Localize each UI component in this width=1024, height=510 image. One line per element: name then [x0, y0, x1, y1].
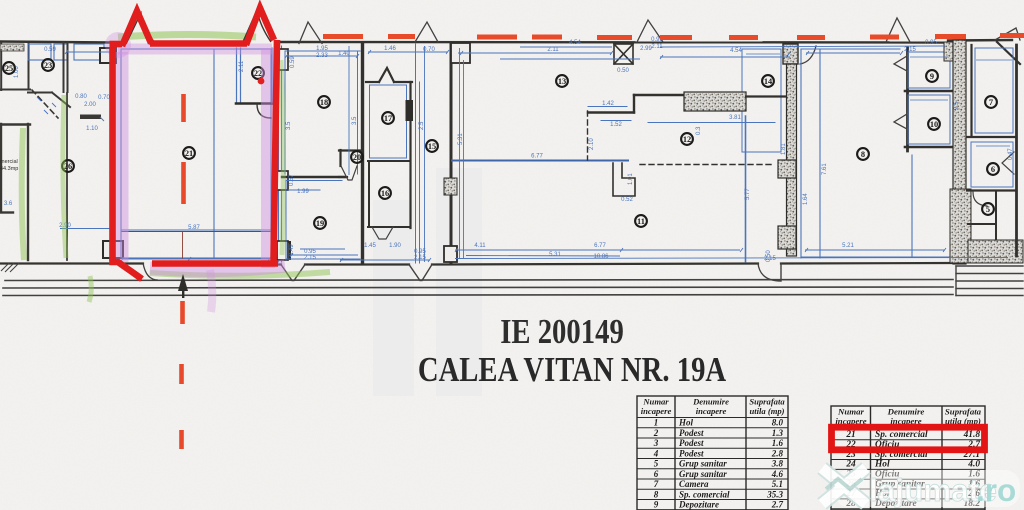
svg-text:Sp. comercial: Sp. comercial [875, 430, 928, 440]
svg-text:6: 6 [654, 469, 659, 479]
svg-text:Hol: Hol [874, 460, 890, 470]
svg-text:Numar: Numar [837, 407, 864, 417]
svg-text:Suprafata: Suprafata [945, 407, 982, 417]
svg-text:8.0: 8.0 [772, 418, 784, 428]
svg-text:1.6: 1.6 [772, 438, 784, 448]
svg-text:Podest: Podest [679, 438, 704, 448]
svg-text:3.8: 3.8 [771, 459, 784, 469]
svg-text:41.8: 41.8 [963, 430, 981, 440]
svg-text:7: 7 [654, 479, 659, 489]
svg-text:4.6: 4.6 [771, 469, 784, 479]
svg-text:.ro: .ro [976, 472, 1016, 508]
svg-text:Sp. comercial: Sp. comercial [679, 489, 730, 499]
svg-text:Hol: Hol [678, 418, 694, 428]
svg-text:4.0: 4.0 [967, 460, 980, 470]
svg-text:Grup sanitar: Grup sanitar [679, 469, 727, 479]
svg-text:Depozitare: Depozitare [678, 500, 719, 510]
svg-text:5.1: 5.1 [772, 479, 783, 489]
svg-text:Grup sanitar: Grup sanitar [679, 459, 727, 469]
svg-text:incapere: incapere [696, 406, 727, 416]
svg-text:9: 9 [654, 500, 659, 510]
svg-text:incapere: incapere [641, 406, 672, 416]
svg-text:Podest: Podest [679, 448, 704, 458]
svg-text:Camera: Camera [679, 479, 709, 489]
svg-text:4: 4 [653, 448, 659, 458]
svg-text:21: 21 [845, 430, 855, 440]
svg-text:1.3: 1.3 [772, 428, 784, 438]
svg-text:Suprafata: Suprafata [749, 397, 785, 407]
svg-text:3: 3 [653, 438, 659, 448]
svg-text:utila (mp): utila (mp) [749, 406, 784, 416]
svg-text:2.8: 2.8 [771, 448, 784, 458]
svg-text:1: 1 [654, 418, 659, 428]
svg-text:Denumire: Denumire [692, 397, 729, 407]
svg-text:Podest: Podest [679, 428, 704, 438]
svg-text:Numar: Numar [642, 397, 669, 407]
svg-text:Denumire: Denumire [887, 407, 925, 417]
svg-text:2.7: 2.7 [771, 500, 784, 510]
svg-text:5: 5 [654, 459, 659, 469]
svg-text:2: 2 [653, 428, 659, 438]
svg-text:8: 8 [654, 489, 659, 499]
svg-text:35.3: 35.3 [766, 489, 783, 499]
